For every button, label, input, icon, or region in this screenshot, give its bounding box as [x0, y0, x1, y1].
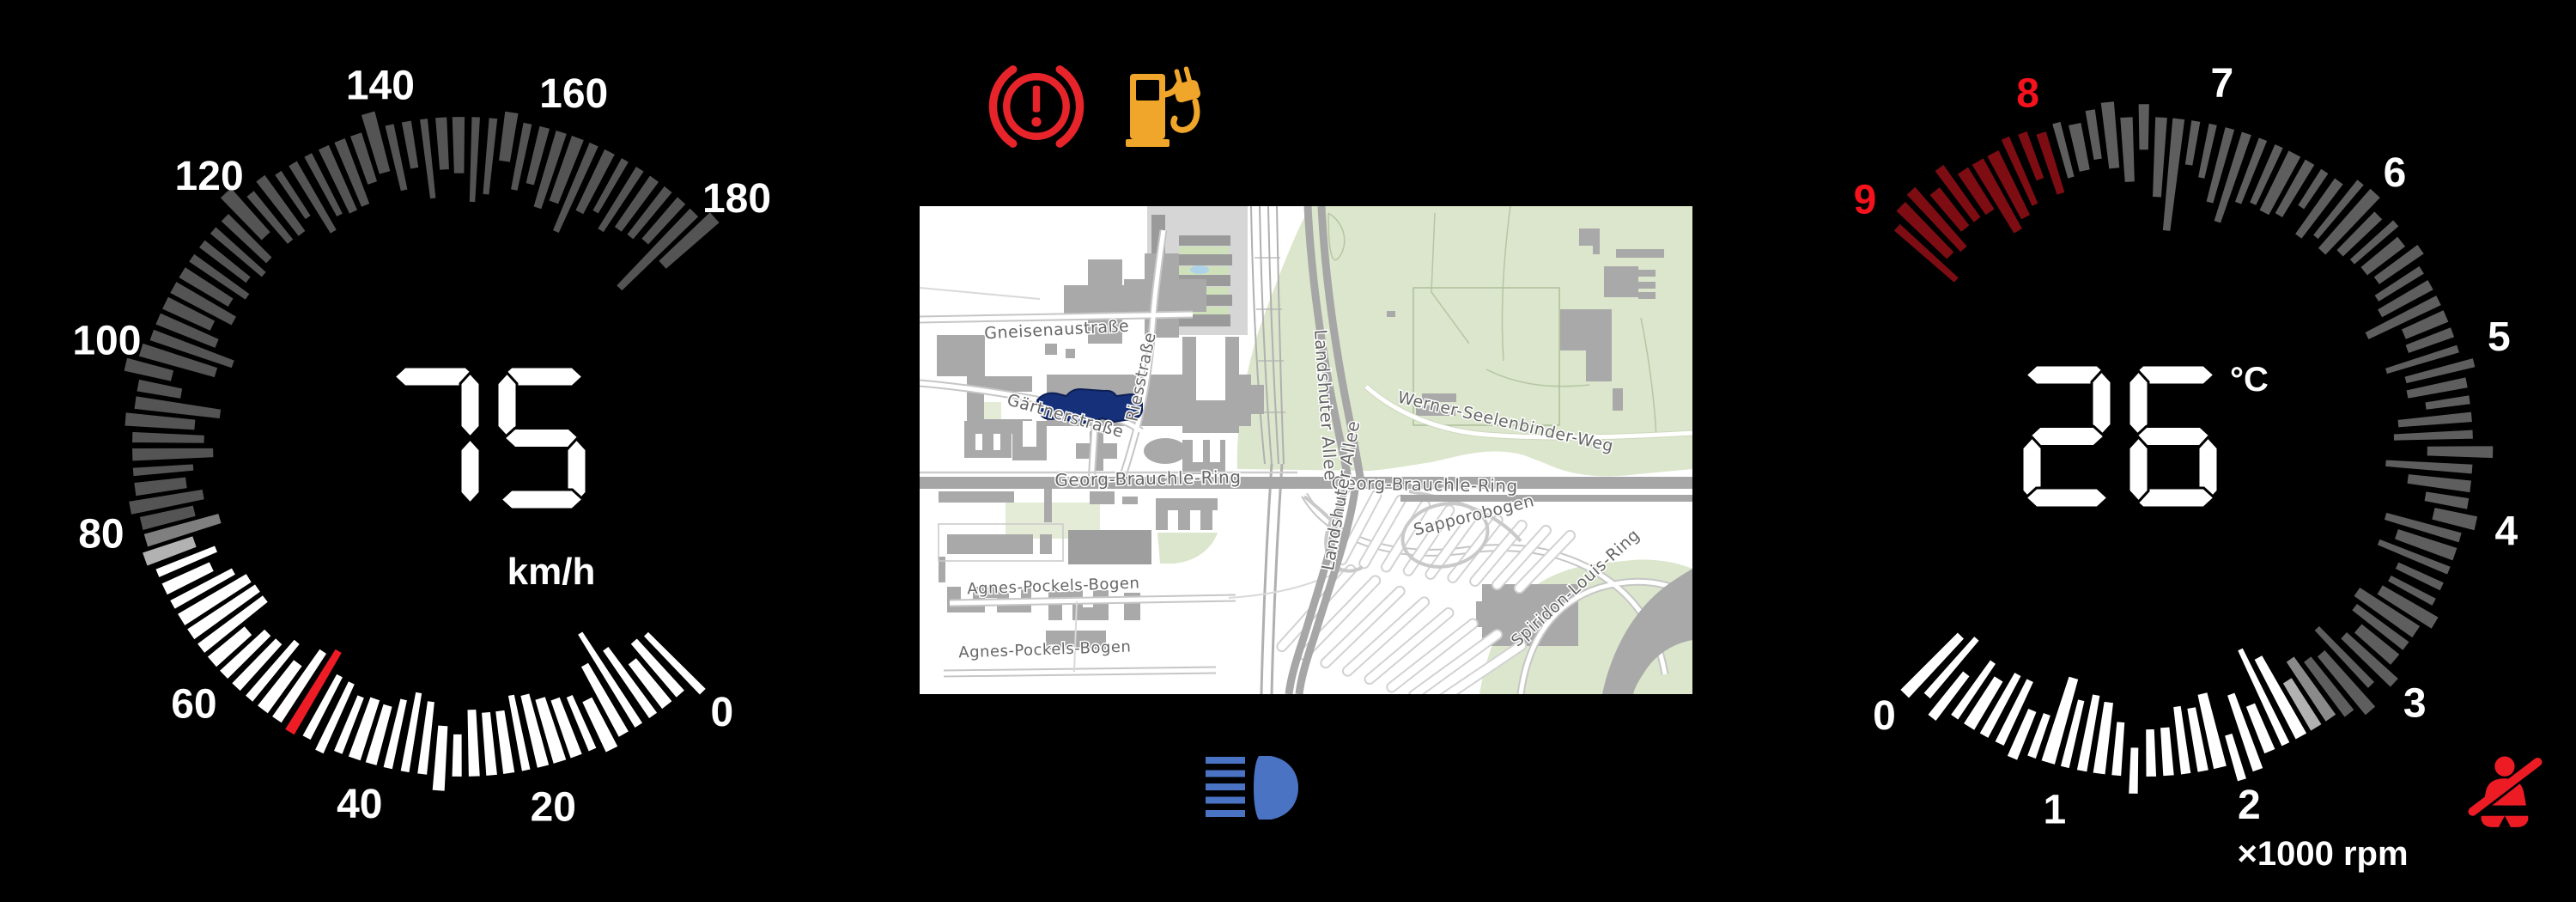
high-beam-icon — [1206, 754, 1300, 821]
seg — [2136, 427, 2211, 447]
gauge-tick-label: 1 — [2044, 788, 2067, 833]
temperature-digital-display — [2022, 365, 2218, 508]
gauge-tick — [432, 725, 449, 792]
temperature-unit-label: °C — [2230, 361, 2307, 399]
street-label: Georg-Brauchle-Ring — [1054, 466, 1241, 491]
speedometer-dial: 020406080100120140160180 — [72, 64, 771, 831]
seg — [2029, 427, 2105, 447]
gauge-tick-label: 0 — [710, 690, 733, 735]
gauge-tick — [2393, 430, 2474, 442]
gauge-tick — [2424, 394, 2471, 411]
gauge-tick-label: 6 — [2384, 150, 2407, 196]
brake-warning-icon — [984, 58, 1089, 155]
gauge-tick — [469, 116, 481, 203]
gauge-tick — [131, 448, 214, 462]
gauge-tick-label: 100 — [72, 318, 141, 363]
gauge-tick-label: 180 — [702, 176, 771, 222]
speed-unit-label: km/h — [474, 551, 629, 594]
exclamation-dot — [1031, 117, 1041, 126]
gauge-tick — [2111, 721, 2125, 777]
gauge-tick — [2385, 460, 2473, 475]
gauge-tick-label: 40 — [337, 782, 382, 827]
gauge-tick-label: 160 — [539, 71, 608, 117]
street-label: Georg-Brauchle-Ring — [1331, 472, 1517, 497]
instrument-cluster: 0204060801001201401601800123456789 km/h … — [0, 0, 2576, 902]
gauge-tick — [131, 431, 205, 444]
gauge-tick — [2423, 491, 2470, 510]
gauge-tick — [482, 117, 498, 195]
gauge-tick-label: 4 — [2495, 509, 2518, 555]
map-pond — [1190, 265, 1209, 274]
gauge-tick-label: 80 — [78, 512, 124, 558]
navigation-map: GneisenaustraßeRiesstraßeGärtnerstraßeGe… — [920, 206, 1692, 694]
rpm-scale-label: ×1000 rpm — [2185, 835, 2460, 874]
gauge-tick-label: 120 — [175, 154, 244, 199]
gauge-tick-label: 3 — [2403, 680, 2427, 726]
gauge-tick — [2184, 119, 2202, 167]
seg — [460, 373, 480, 437]
fuel-charging-icon — [1125, 62, 1206, 149]
seg — [2026, 488, 2108, 508]
gauge-tick — [2138, 103, 2150, 150]
gauge-tick — [2145, 728, 2157, 777]
seg — [460, 439, 480, 503]
gauge-tick — [467, 709, 481, 777]
gauge-tick-label: 20 — [531, 785, 576, 831]
gauge-tick-label: 0 — [1873, 693, 1896, 739]
gauge-tick-label: 5 — [2488, 314, 2511, 360]
gauge-tick-label: 7 — [2210, 61, 2233, 107]
gauge-tick — [434, 116, 450, 170]
map-canvas: GneisenaustraßeRiesstraßeGärtnerstraßeGe… — [920, 206, 1692, 694]
gauge-tick-label: 9 — [1854, 177, 1877, 222]
seg — [504, 429, 580, 448]
seatbelt-warning-icon — [2463, 756, 2552, 838]
gauge-tick — [2397, 411, 2474, 429]
gauge-tick — [132, 463, 195, 477]
gauge-tick — [2427, 445, 2494, 459]
gauge-tick-label: 2 — [2238, 783, 2261, 828]
gauge-tick — [452, 116, 465, 174]
gauge-tick — [419, 118, 437, 199]
gauge-tick — [452, 734, 463, 777]
exclamation-bar — [1033, 86, 1040, 113]
gauge-tick-label: 60 — [171, 682, 216, 728]
seg — [2129, 437, 2148, 502]
gauge-tick — [2406, 473, 2472, 493]
gauge-tick — [2119, 116, 2136, 183]
gauge-tick — [2128, 747, 2139, 795]
gauge-tick-label: 140 — [346, 64, 415, 109]
gauge-tick — [401, 119, 420, 169]
seg — [501, 490, 583, 509]
gauge-tick-label: 8 — [2016, 70, 2039, 116]
gauge-tick — [2160, 727, 2175, 777]
speed-digital-display — [394, 367, 586, 509]
